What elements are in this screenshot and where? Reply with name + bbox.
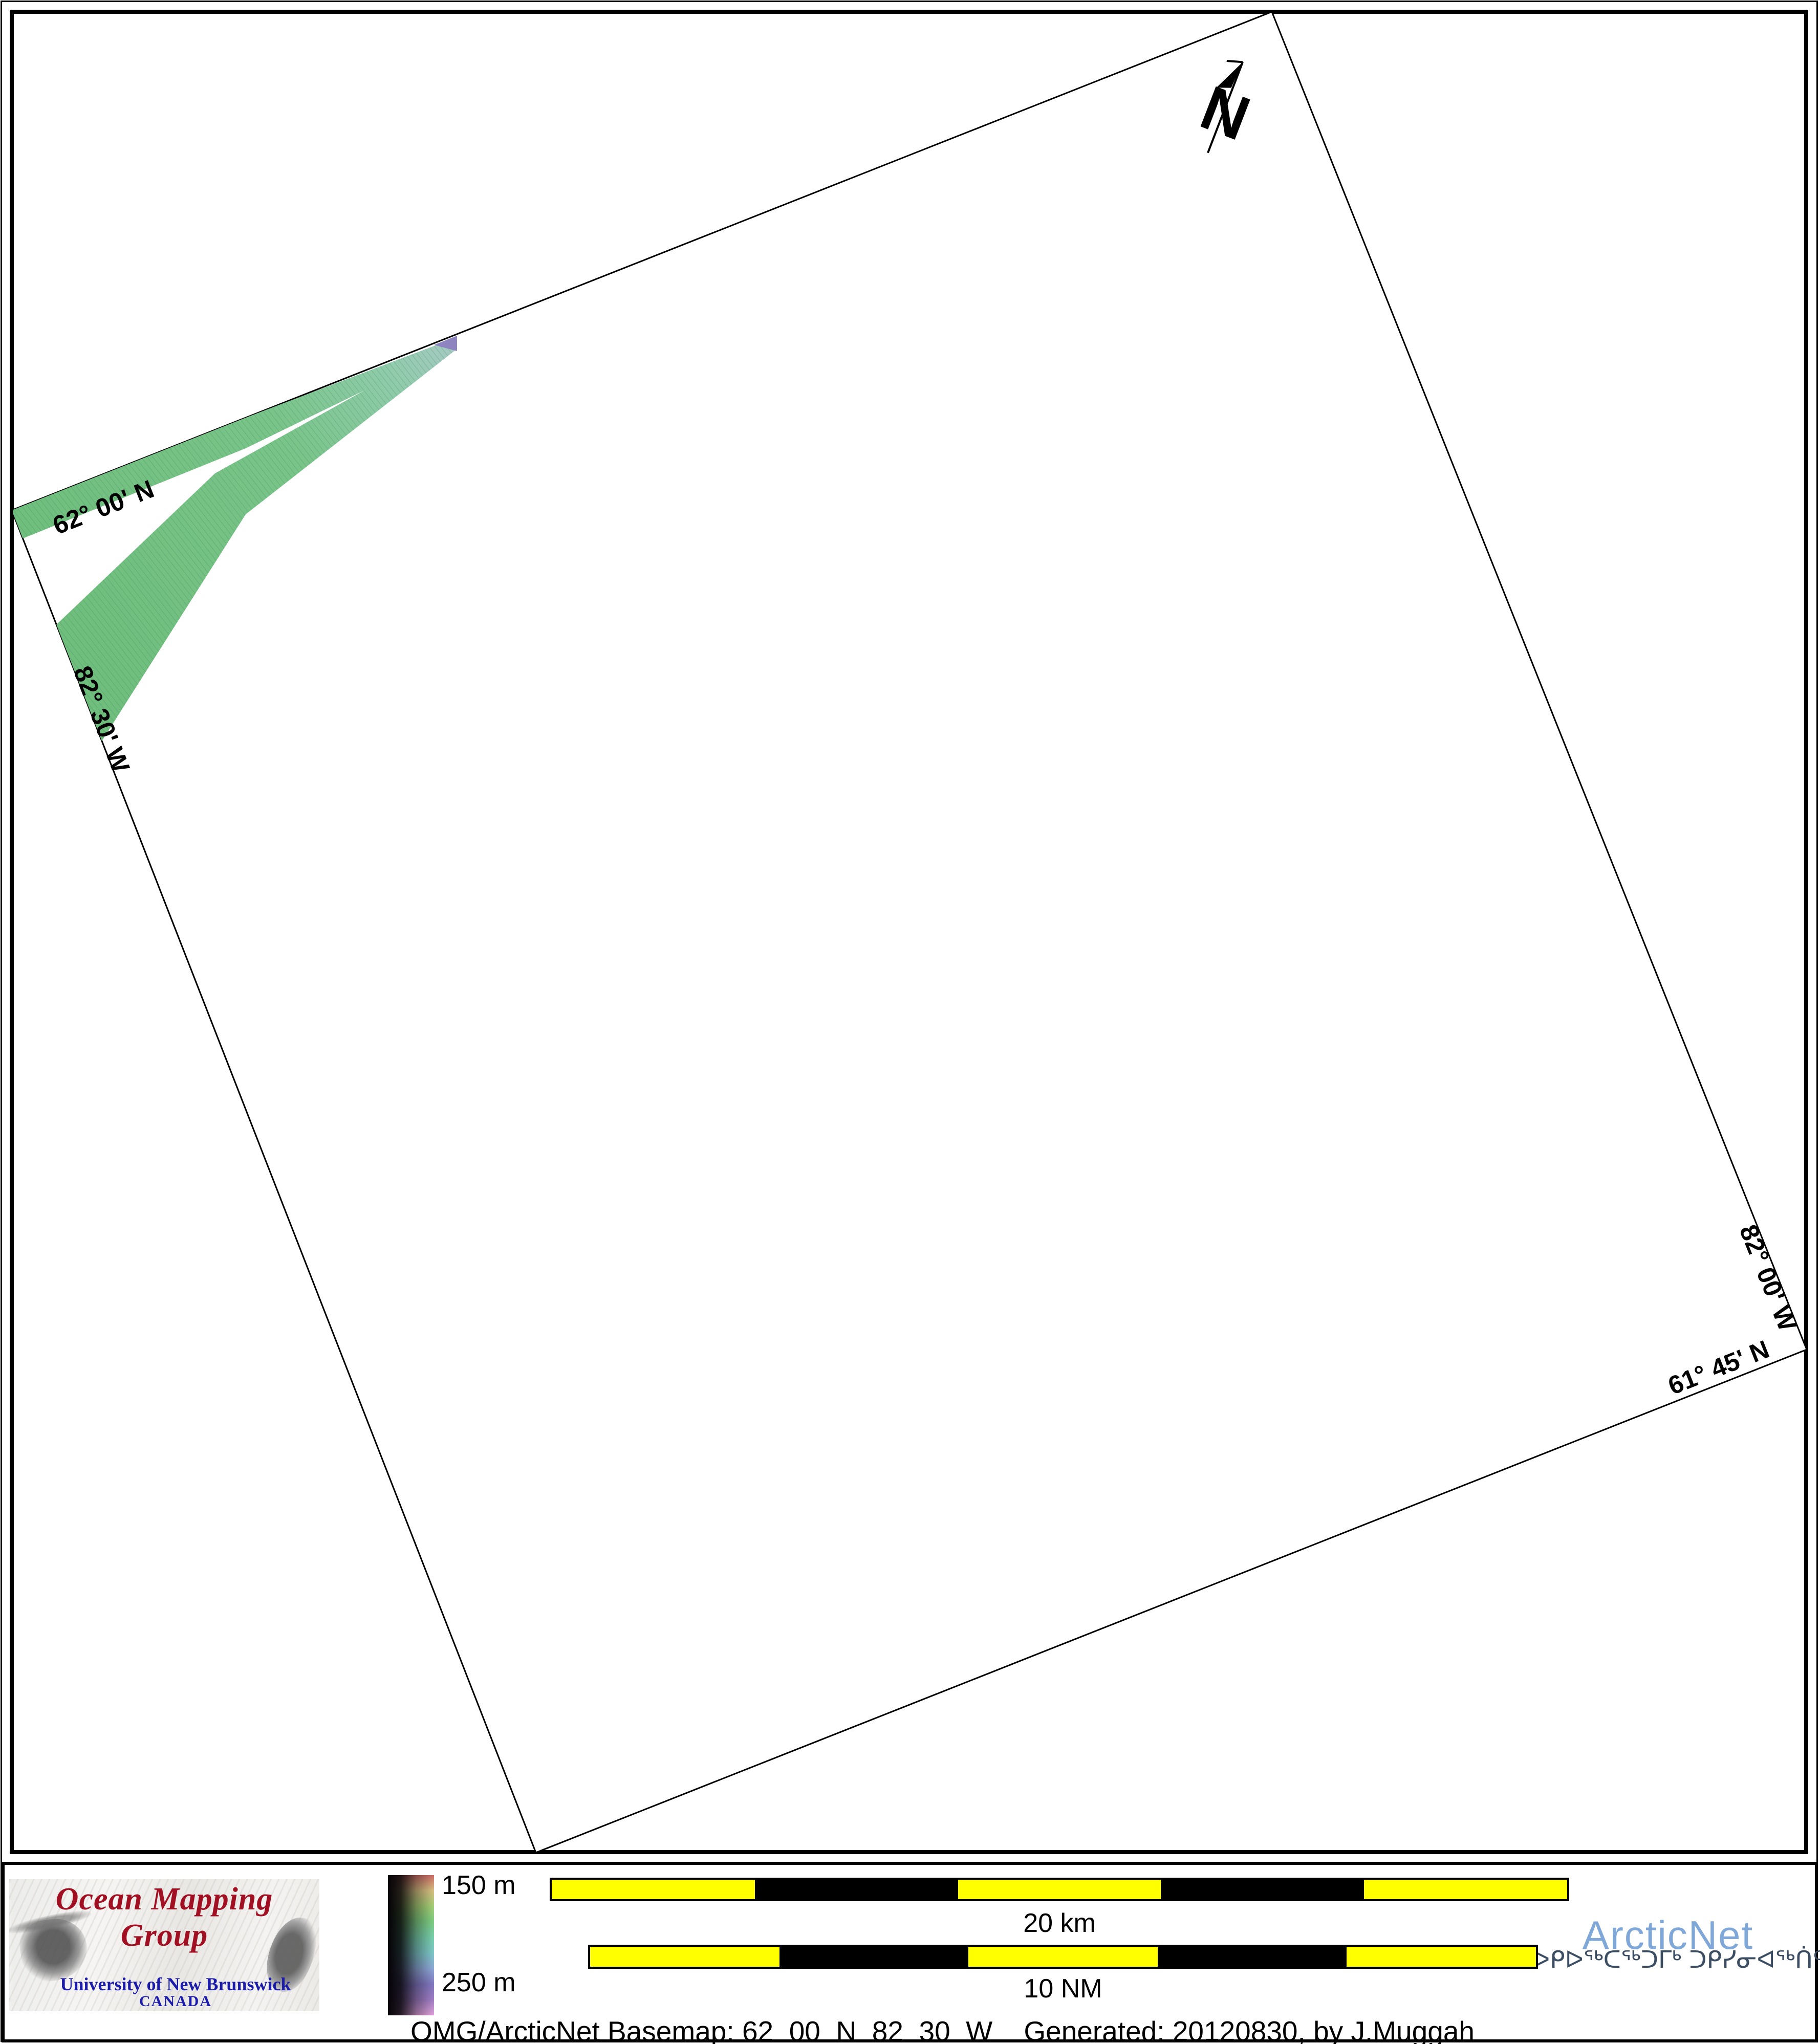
omg-logo: Ocean Mapping Group University of New Br… bbox=[9, 1879, 319, 2011]
omg-logo-country: CANADA bbox=[55, 1993, 296, 2010]
scalebar-segment bbox=[1364, 1880, 1567, 1899]
scalebar-10nm bbox=[588, 1945, 1538, 1969]
basemap-caption: OMG/ArcticNet Basemap: 62_00_N_82_30_W G… bbox=[410, 2015, 1475, 2044]
arcticnet-inuktitut-text: ᐅᑭᐅᖅᑕᖅᑐᒥᒃ ᑐᑭᓯᓂᐊᖅᑏᑦ bbox=[1531, 1946, 1820, 1974]
scalebar-segment bbox=[958, 1880, 1161, 1899]
basemap-page: 62° 00' N 82° 30' W 82° 00' W 61° 45' N … bbox=[0, 0, 1820, 2044]
depth-min-label: 150 m bbox=[442, 1870, 516, 1901]
scalebar-segment bbox=[779, 1947, 969, 1967]
scalebar-10nm-label: 10 NM bbox=[588, 1973, 1538, 2004]
depth-colorbar bbox=[388, 1875, 434, 2015]
legend-bar: Ocean Mapping Group University of New Br… bbox=[2, 1862, 1818, 2042]
scalebar-20km bbox=[550, 1878, 1569, 1901]
depth-max-label: 250 m bbox=[442, 1967, 516, 1998]
scalebar-segment bbox=[1161, 1880, 1364, 1899]
scalebar-segment bbox=[1158, 1947, 1347, 1967]
scalebar-segment bbox=[1347, 1947, 1536, 1967]
scalebar-segment bbox=[552, 1880, 755, 1899]
scalebar-segment bbox=[755, 1880, 958, 1899]
scalebar-segment bbox=[590, 1947, 779, 1967]
scalebar-segment bbox=[968, 1947, 1158, 1967]
omg-logo-title: Ocean Mapping Group bbox=[9, 1881, 319, 1954]
map-canvas: 62° 00' N 82° 30' W 82° 00' W 61° 45' N … bbox=[0, 0, 1820, 1863]
map-neatline bbox=[12, 12, 1807, 1853]
scalebar-20km-label: 20 km bbox=[550, 1908, 1569, 1939]
omg-logo-institution: University of New Brunswick bbox=[55, 1973, 296, 1995]
